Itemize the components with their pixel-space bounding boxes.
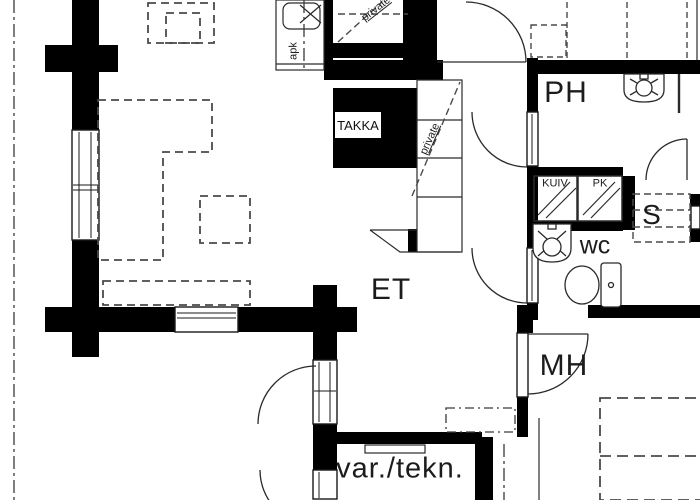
door-arc <box>472 112 527 167</box>
wall-segment <box>238 307 357 332</box>
appliance-label-washing-machine: PK <box>593 179 608 190</box>
wall-segment <box>313 285 337 360</box>
door-arc <box>472 248 527 303</box>
room-label-storage-technical: var./tekn. <box>336 455 464 484</box>
door-leaf <box>313 360 337 424</box>
door-arc <box>466 2 526 62</box>
wall-segment <box>313 424 337 470</box>
window <box>691 206 700 229</box>
room-label-entrance: ET <box>371 275 411 305</box>
room-label-bedroom: MH <box>540 351 589 381</box>
appliance-label-dishwasher: apk <box>289 42 300 60</box>
wall-segment <box>72 240 99 357</box>
fireplace-label-box: TAKKA <box>333 110 383 140</box>
wall-segment <box>517 397 528 437</box>
washbasin-drain <box>636 80 652 96</box>
door-arc <box>258 366 316 424</box>
toilet-flush-button <box>609 283 614 288</box>
wall-segment <box>517 305 533 333</box>
wall-segment <box>527 60 700 74</box>
washbasin-drain <box>543 238 561 256</box>
sofa-outline <box>98 100 212 260</box>
wall-segment <box>528 167 623 176</box>
water-heater-outline <box>446 408 515 432</box>
wall-cross-arm <box>45 45 118 72</box>
overhead-outline <box>166 13 200 43</box>
floor-plan-canvas: ET PH MH S wc var./tekn. KUIV PK TAKKA a… <box>0 0 700 500</box>
appliance-label-fireplace: TAKKA <box>337 118 379 133</box>
wall-segment <box>333 43 412 58</box>
wall-segment <box>690 194 700 206</box>
washbasin-tap <box>640 74 648 79</box>
appliance-label-drying-cabinet: KUIV <box>542 179 568 190</box>
overhead-outline <box>148 3 214 43</box>
room-label-washroom: PH <box>544 78 588 108</box>
room-label-toilet: wc <box>580 234 611 259</box>
bed-outline <box>600 398 700 500</box>
toilet-bowl <box>565 266 599 304</box>
rug-outline <box>103 281 250 305</box>
wall-segment <box>475 437 493 500</box>
wall-segment <box>45 307 175 332</box>
wall-segment <box>690 229 700 242</box>
window <box>175 307 238 332</box>
wardrobe-column-outline <box>417 80 462 252</box>
table-outline <box>200 196 250 243</box>
wall-segment <box>337 432 482 444</box>
door-arc <box>260 470 316 500</box>
window <box>517 333 528 397</box>
washbasin-tap <box>548 224 556 229</box>
door-leaf <box>313 470 337 499</box>
door-arc <box>646 139 687 180</box>
overhead-outline <box>531 25 566 57</box>
chimney-block <box>327 60 443 80</box>
room-label-sauna: S <box>642 201 662 229</box>
